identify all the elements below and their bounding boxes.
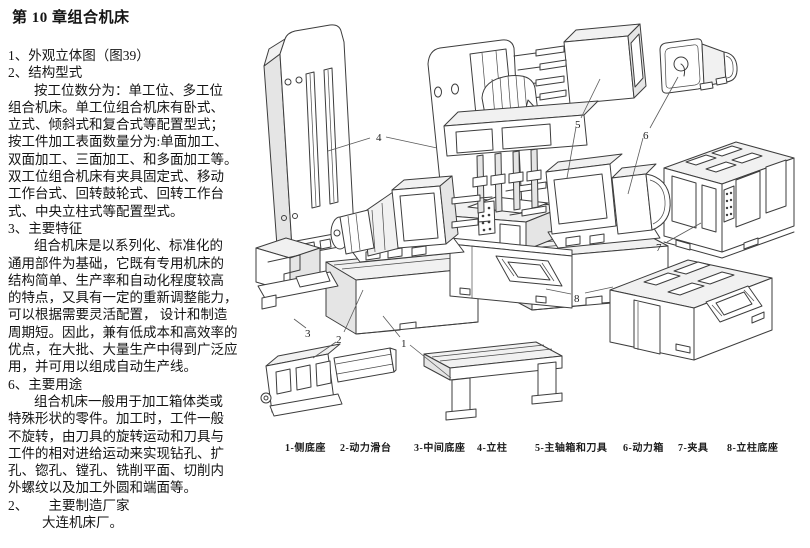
caption-item-1: 1-侧底座 (285, 439, 326, 454)
callout-6: 6 (643, 130, 649, 142)
caption-item-5: 5-主轴箱和刀具 (535, 439, 607, 454)
power-slide-exploded (261, 344, 396, 416)
callout-8: 8 (574, 293, 580, 305)
machine-tool-diagram: 4 5 6 7 8 3 2 1 (0, 0, 810, 548)
caption-item-8: 8-立柱底座 (727, 439, 778, 454)
caption-item-2: 2-动力滑台 (340, 439, 391, 454)
callout-4: 4 (376, 132, 382, 144)
callout-1: 1 (401, 338, 407, 350)
fixture-box (664, 142, 794, 258)
caption-item-7: 7-夹具 (678, 439, 708, 454)
figure39-exploded-view: 4 5 6 7 8 3 2 1 1-侧底座 2-动力滑台 3-中间底座 4-立柱… (0, 0, 810, 548)
callout-5: 5 (575, 119, 581, 131)
callout-7: 7 (656, 242, 662, 254)
callout-3: 3 (305, 328, 311, 340)
caption-item-3: 3-中间底座 (414, 439, 465, 454)
power-box-exploded (660, 39, 737, 93)
column-base-center (450, 238, 572, 308)
side-base-bench (424, 342, 562, 420)
page: { "doc": { "title": "第 10 章组合机床", "lines… (0, 0, 810, 548)
caption-item-6: 6-动力箱 (623, 439, 664, 454)
caption-item-4: 4-立柱 (477, 439, 507, 454)
callout-2: 2 (336, 334, 342, 346)
